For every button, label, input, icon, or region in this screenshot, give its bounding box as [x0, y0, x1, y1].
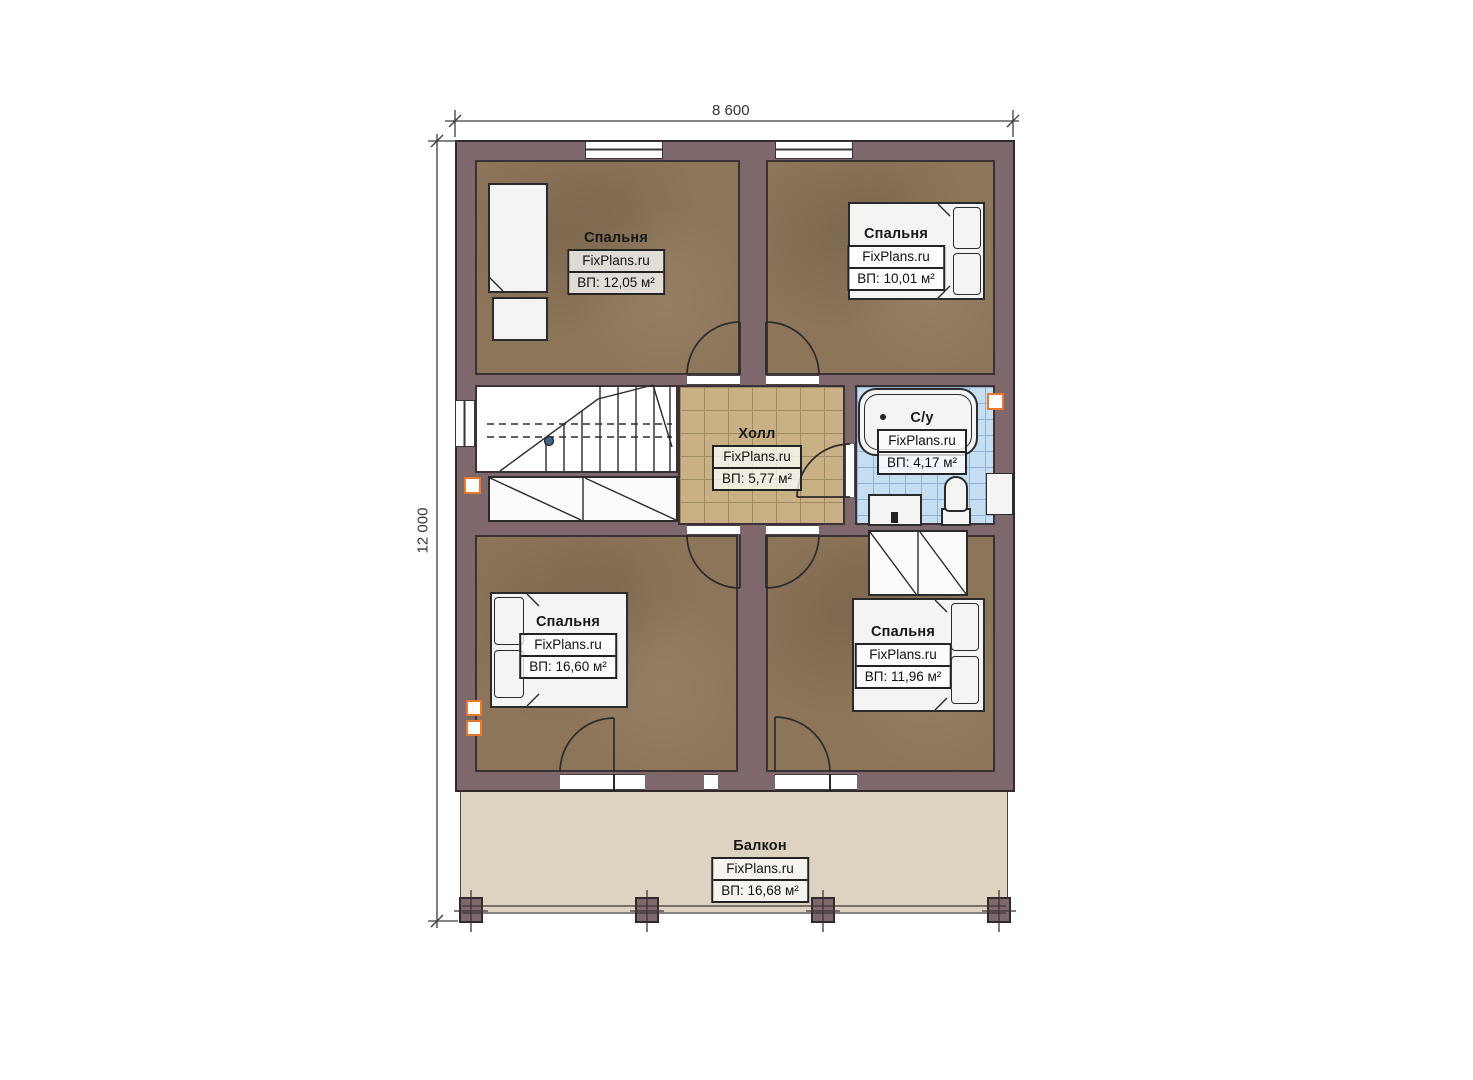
balcony-post [811, 897, 835, 923]
room-label-bedroom-top-left: Спальня FixPlans.ru ВП: 12,05 м² [567, 230, 665, 295]
vent-marker-left-mid [464, 477, 481, 494]
room-info-box: FixPlans.ru ВП: 10,01 м² [847, 245, 945, 291]
balcony-post [635, 897, 659, 923]
room-label-bathroom: С/у FixPlans.ru ВП: 4,17 м² [877, 410, 967, 475]
room-area: ВП: 10,01 м² [849, 267, 943, 289]
room-info-box: FixPlans.ru ВП: 16,68 м² [711, 857, 809, 903]
balcony-door-right-opening [775, 774, 857, 790]
room-area: ВП: 12,05 м² [569, 271, 663, 293]
room-area: ВП: 16,68 м² [713, 879, 807, 901]
room-name: Спальня [567, 230, 665, 246]
room-name: Спальня [847, 226, 945, 242]
watermark: FixPlans.ru [857, 645, 950, 665]
closet-bathroom-side [868, 530, 968, 596]
pillow [951, 656, 979, 704]
room-name: Балкон [711, 838, 809, 854]
door-opening-hall-bedroom-br [766, 525, 819, 535]
vent-marker-left-low-1 [466, 700, 482, 716]
window-top-left [585, 141, 663, 159]
room-name: Холл [712, 426, 802, 442]
room-area: ВП: 4,17 м² [879, 451, 965, 473]
dimension-height-label: 12 000 [414, 508, 431, 554]
wall-duct-block [986, 473, 1013, 515]
watermark: FixPlans.ru [521, 635, 615, 655]
room-info-box: FixPlans.ru ВП: 11,96 м² [855, 643, 952, 689]
door-opening-hall-bedroom-tl [687, 375, 740, 385]
room-label-balcony: Балкон FixPlans.ru ВП: 16,68 м² [711, 838, 809, 903]
room-info-box: FixPlans.ru ВП: 16,60 м² [519, 633, 617, 679]
room-name: С/у [877, 410, 967, 426]
room-info-box: FixPlans.ru ВП: 4,17 м² [877, 429, 967, 475]
sink-tap [891, 512, 898, 523]
balcony-post [459, 897, 483, 923]
pillow [953, 207, 981, 249]
window-left-stairs [455, 400, 475, 447]
watermark: FixPlans.ru [849, 247, 943, 267]
room-name: Спальня [855, 624, 952, 640]
balcony-door-left-opening [560, 774, 645, 790]
bottom-wall-opening-small [704, 774, 718, 790]
dimension-width-label: 8 600 [712, 102, 750, 119]
wardrobe-top-left [488, 183, 548, 293]
room-area: ВП: 11,96 м² [857, 665, 950, 687]
balcony-post [987, 897, 1011, 923]
door-opening-hall-bedroom-bl [687, 525, 740, 535]
stairwell [475, 385, 678, 473]
room-area: ВП: 5,77 м² [714, 467, 800, 489]
room-label-bedroom-top-right: Спальня FixPlans.ru ВП: 10,01 м² [847, 226, 945, 291]
room-info-box: FixPlans.ru ВП: 5,77 м² [712, 445, 802, 491]
room-area: ВП: 16,60 м² [521, 655, 615, 677]
floor-plan-canvas: 8 600 12 000 [0, 0, 1473, 1080]
room-label-hall: Холл FixPlans.ru ВП: 5,77 м² [712, 426, 802, 491]
window-top-right [775, 141, 853, 159]
door-opening-bathroom [845, 444, 855, 497]
door-opening-hall-bedroom-tr [766, 375, 819, 385]
room-label-bedroom-bottom-right: Спальня FixPlans.ru ВП: 11,96 м² [855, 624, 952, 689]
pillow [951, 603, 979, 651]
watermark: FixPlans.ru [569, 251, 663, 271]
watermark: FixPlans.ru [714, 447, 800, 467]
balcony-door-left-divider [613, 774, 615, 790]
closet-under-stairs [488, 476, 678, 522]
room-info-box: FixPlans.ru ВП: 12,05 м² [567, 249, 665, 295]
cabinet-top-left [492, 297, 548, 341]
room-name: Спальня [519, 614, 617, 630]
watermark: FixPlans.ru [713, 859, 807, 879]
toilet-bowl [944, 476, 968, 512]
vent-marker-left-low-2 [466, 720, 482, 736]
balcony-door-right-divider [829, 774, 831, 790]
room-label-bedroom-bottom-left: Спальня FixPlans.ru ВП: 16,60 м² [519, 614, 617, 679]
vent-marker-right [987, 393, 1004, 410]
pillow [953, 253, 981, 295]
watermark: FixPlans.ru [879, 431, 965, 451]
